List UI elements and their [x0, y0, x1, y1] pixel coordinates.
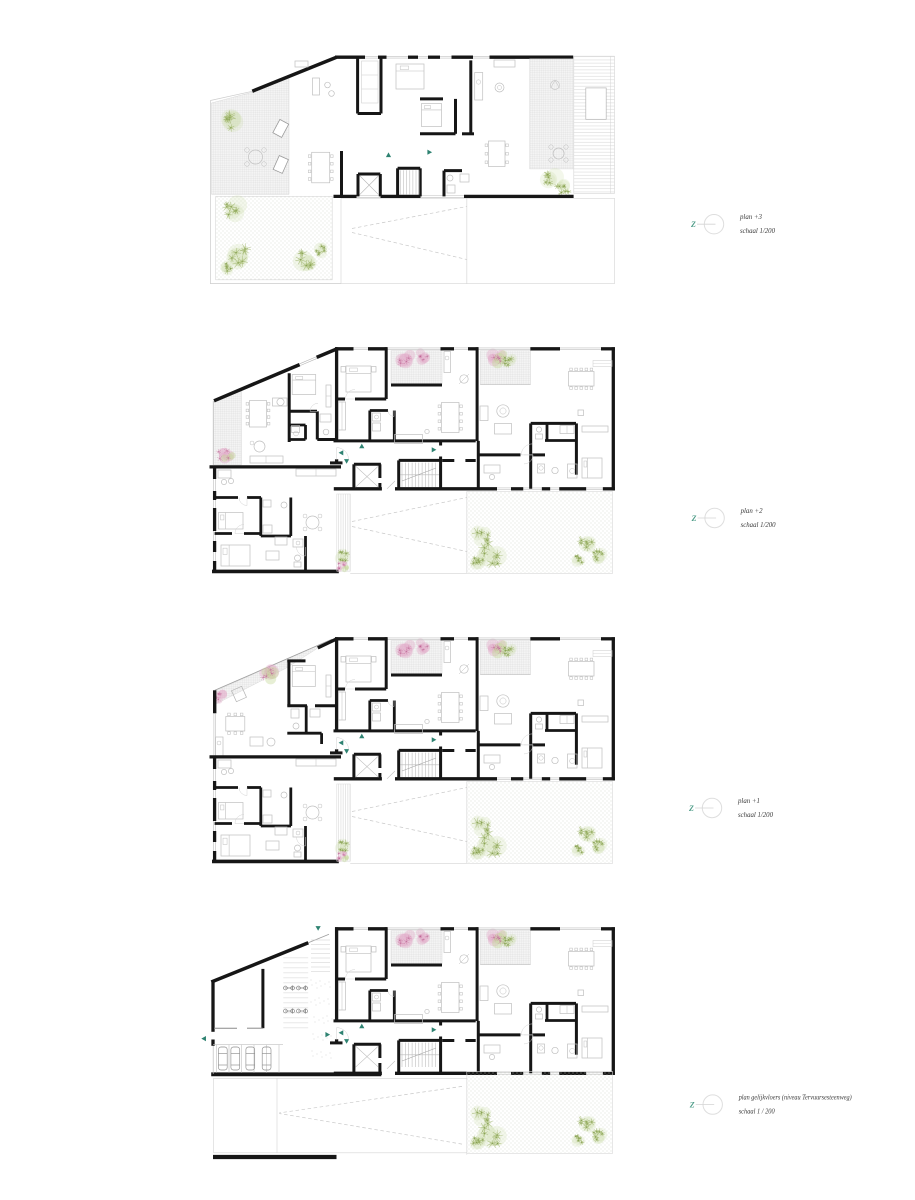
svg-text:Z: Z [689, 1101, 695, 1110]
svg-text:Z: Z [690, 220, 696, 229]
svg-text:schaal 1 / 200: schaal 1 / 200 [739, 1108, 775, 1116]
svg-text:Z: Z [688, 804, 694, 813]
svg-text:Z: Z [691, 514, 697, 523]
svg-text:plan +1: plan +1 [737, 797, 760, 805]
svg-text:plan +2: plan +2 [740, 507, 763, 515]
svg-text:plan gelijkvloers (niveau Terv: plan gelijkvloers (niveau Tervuursesteen… [738, 1094, 852, 1102]
svg-text:plan +3: plan +3 [739, 213, 762, 221]
svg-text:schaal 1/200: schaal 1/200 [740, 227, 775, 235]
svg-text:schaal 1/200: schaal 1/200 [741, 521, 776, 529]
svg-text:schaal 1/200: schaal 1/200 [738, 811, 773, 819]
